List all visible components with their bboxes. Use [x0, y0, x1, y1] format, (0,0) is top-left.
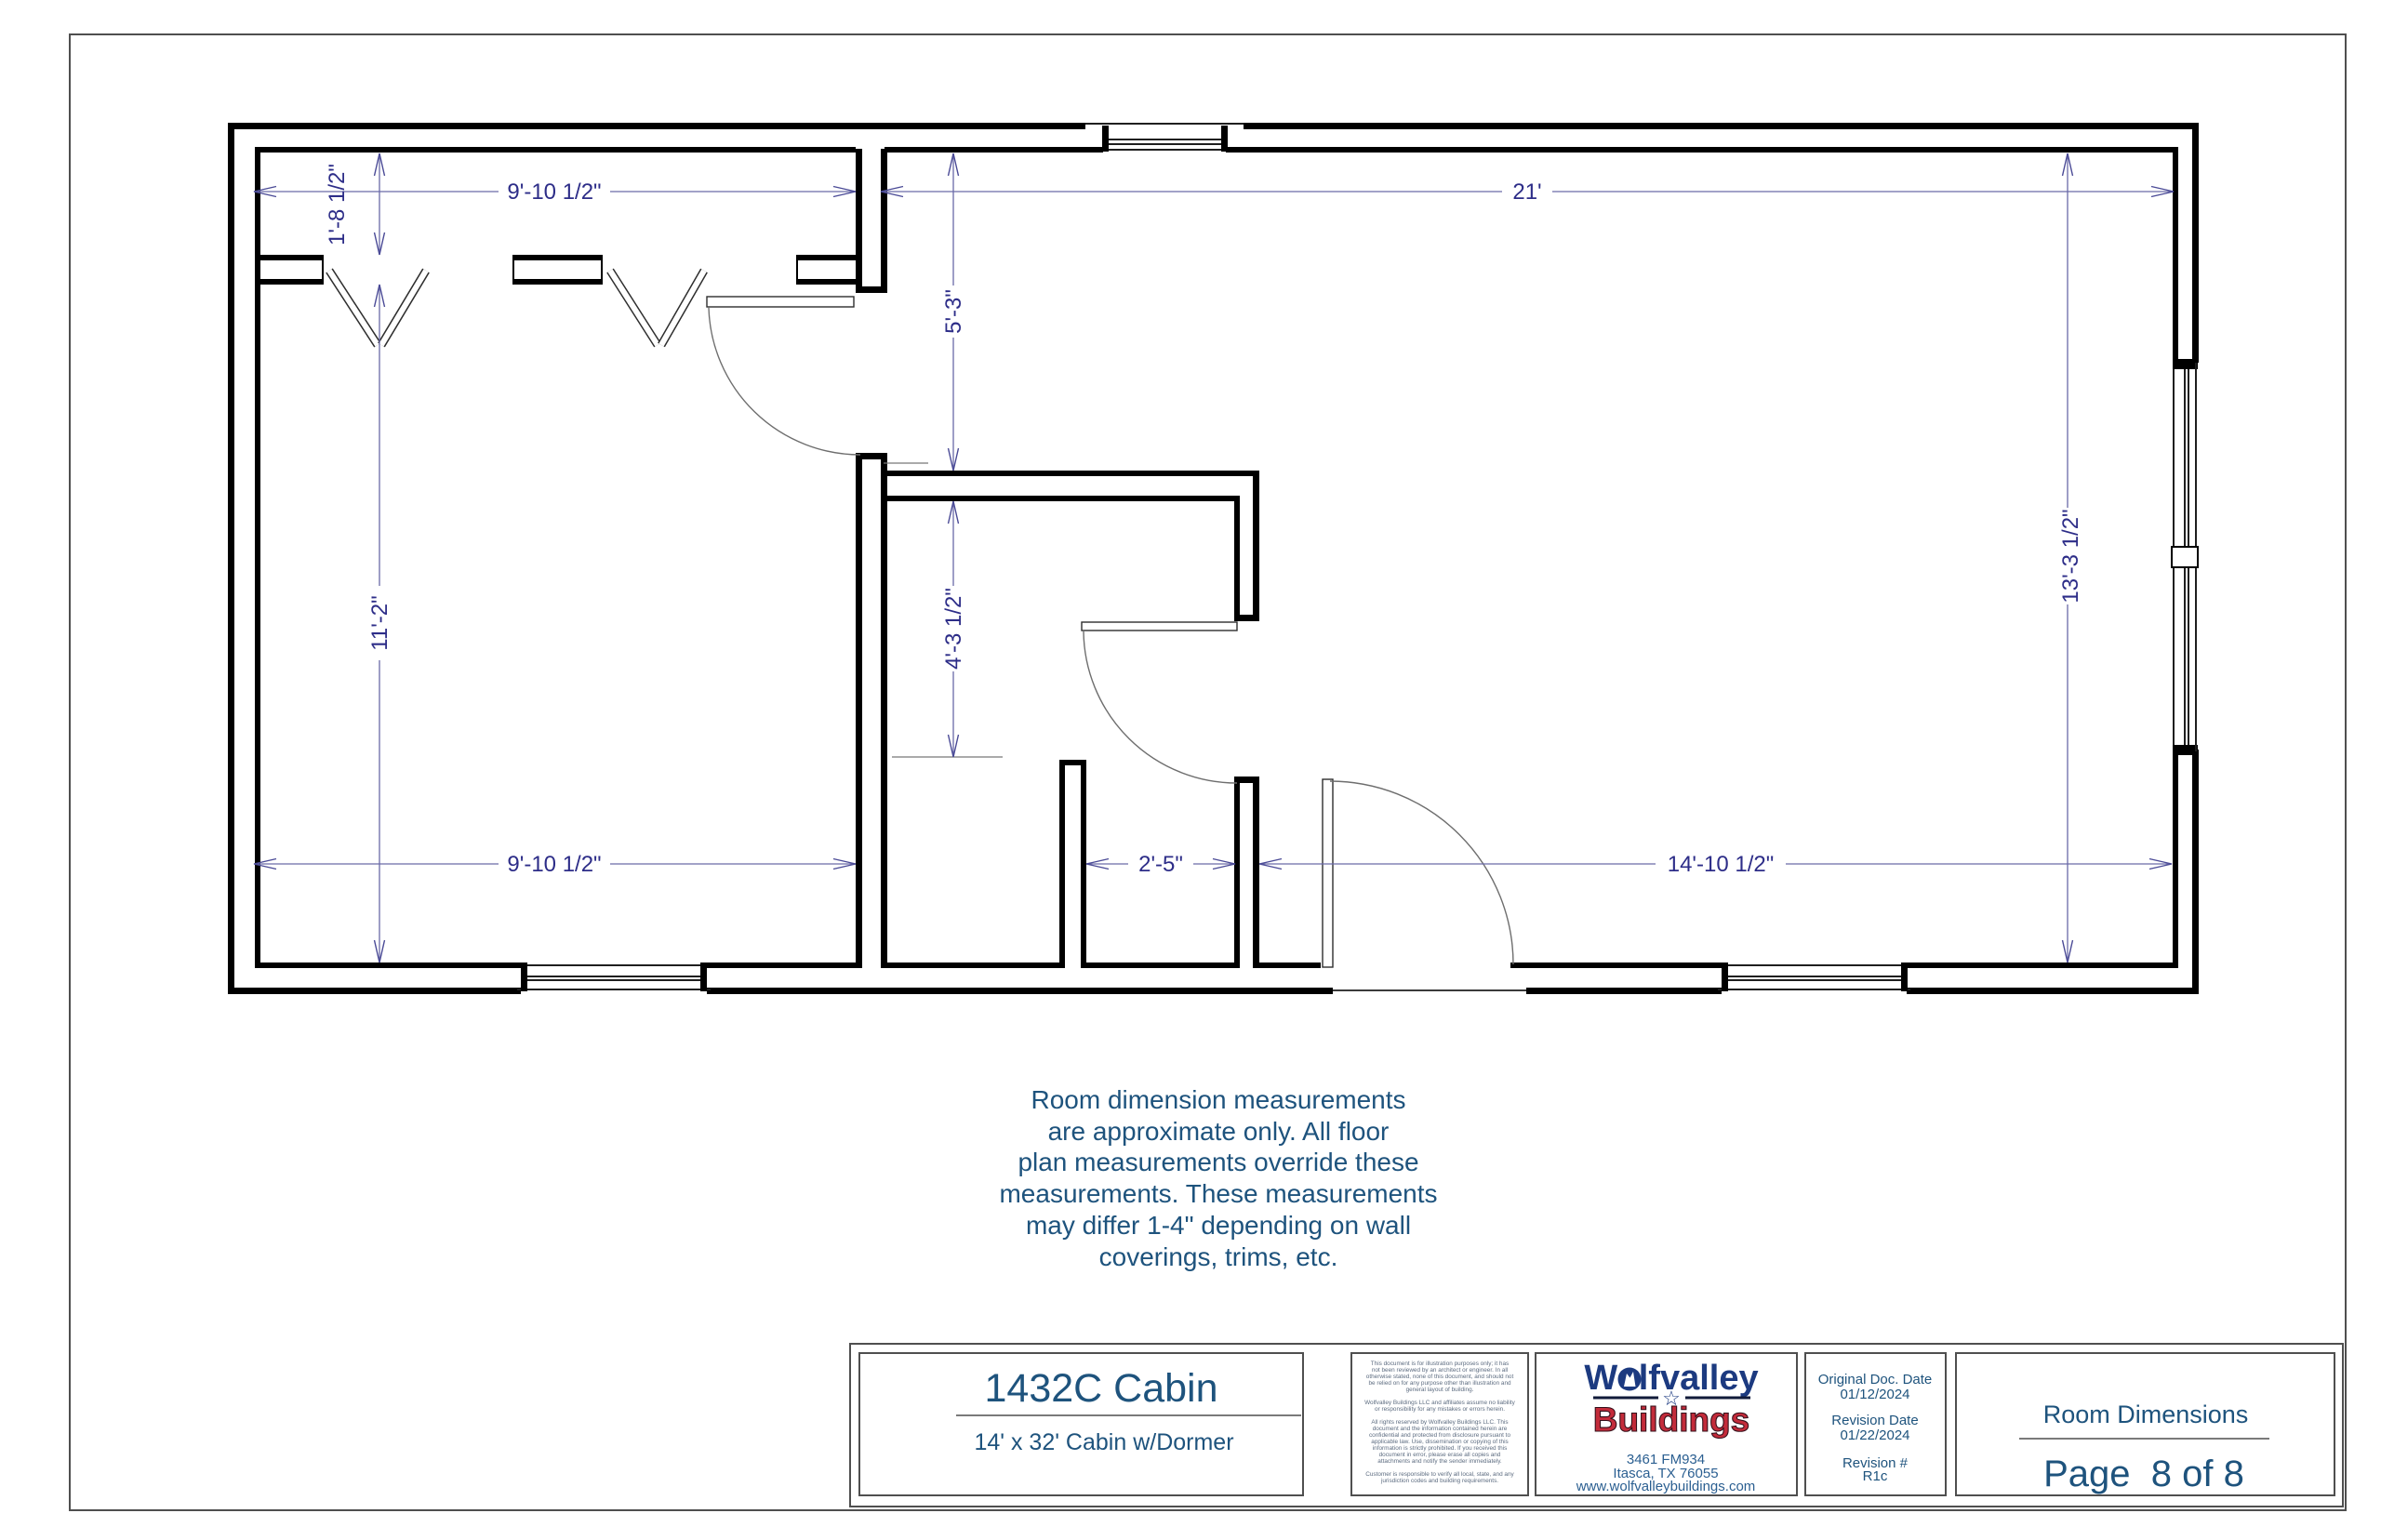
- svg-text:may differ 1-4" depending on w: may differ 1-4" depending on wall: [1026, 1211, 1411, 1240]
- svg-text:Original Doc. Date: Original Doc. Date: [1818, 1372, 1933, 1387]
- svg-text:All rights reserved by Wolfval: All rights reserved by Wolfvalley Buildi…: [1371, 1419, 1508, 1426]
- svg-text:21': 21': [1512, 179, 1541, 205]
- svg-text:Room dimension measurements: Room dimension measurements: [1031, 1085, 1405, 1114]
- svg-text:R1c: R1c: [1863, 1468, 1888, 1484]
- svg-text:13'-3 1/2": 13'-3 1/2": [2058, 509, 2083, 603]
- svg-text:Revision Date: Revision Date: [1831, 1413, 1918, 1428]
- svg-text:11'-2": 11'-2": [367, 595, 392, 650]
- svg-text:applicable law. Use, dissemina: applicable law. Use, dissemination or co…: [1371, 1439, 1508, 1445]
- svg-text:Wolfvalley Buildings LLC and a: Wolfvalley Buildings LLC and affiliates …: [1364, 1400, 1516, 1406]
- svg-text:01/12/2024: 01/12/2024: [1840, 1387, 1909, 1402]
- svg-text:Room Dimensions: Room Dimensions: [2043, 1401, 2249, 1428]
- svg-text:plan measurements override the: plan measurements override these: [1018, 1148, 1418, 1176]
- svg-text:general layout of building.: general layout of building.: [1406, 1387, 1474, 1393]
- svg-text:Page 8 of 8: Page 8 of 8: [2043, 1454, 2244, 1494]
- svg-text:14'-10 1/2": 14'-10 1/2": [1668, 852, 1775, 877]
- svg-text:01/22/2024: 01/22/2024: [1840, 1427, 1909, 1443]
- svg-text:Customer is responsible to ver: Customer is responsible to verify all lo…: [1365, 1471, 1514, 1478]
- svg-text:2'-5": 2'-5": [1138, 852, 1183, 877]
- svg-text:information is strictly prohib: information is strictly prohibited. If y…: [1373, 1445, 1508, 1452]
- svg-text:jurisdiction codes and buildin: jurisdiction codes and building requirem…: [1380, 1478, 1498, 1484]
- svg-text:not been reviewed by an archit: not been reviewed by an architect or eng…: [1372, 1367, 1508, 1374]
- svg-text:14' x 32' Cabin w/Dormer: 14' x 32' Cabin w/Dormer: [974, 1429, 1233, 1455]
- svg-text:1432C Cabin: 1432C Cabin: [984, 1366, 1217, 1411]
- svg-text:9'-10 1/2": 9'-10 1/2": [507, 852, 601, 877]
- svg-text:confidential and protected fro: confidential and protected from disclosu…: [1369, 1432, 1510, 1439]
- svg-text:9'-10 1/2": 9'-10 1/2": [507, 179, 601, 205]
- svg-text:4'-3 1/2": 4'-3 1/2": [941, 588, 966, 670]
- svg-text:5'-3": 5'-3": [941, 289, 966, 334]
- svg-text:www.wolfvalleybuildings.com: www.wolfvalleybuildings.com: [1576, 1479, 1756, 1494]
- svg-text:document in error, please eras: document in error, please erase all copi…: [1379, 1452, 1501, 1458]
- svg-text:This document is for illustrat: This document is for illustration purpos…: [1371, 1361, 1509, 1367]
- svg-text:measurements. These measuremen: measurements. These measurements: [999, 1179, 1437, 1208]
- svg-text:be relied on for any purpose o: be relied on for any purpose other than …: [1368, 1380, 1511, 1387]
- svg-text:or responsibility for any mist: or responsibility for any mistakes or er…: [1375, 1406, 1505, 1413]
- svg-text:1'-8 1/2": 1'-8 1/2": [325, 164, 350, 246]
- svg-text:otherwise stated, none of this: otherwise stated, none of this document,…: [1366, 1374, 1514, 1380]
- svg-text:Buildings: Buildings: [1593, 1401, 1750, 1439]
- svg-text:are approximate only. All floo: are approximate only. All floor: [1048, 1117, 1390, 1146]
- svg-text:coverings, trims, etc.: coverings, trims, etc.: [1099, 1242, 1338, 1271]
- svg-text:document and the information c: document and the information contained h…: [1373, 1426, 1508, 1432]
- svg-text:attachments and notify the sen: attachments and notify the sender immedi…: [1377, 1458, 1502, 1465]
